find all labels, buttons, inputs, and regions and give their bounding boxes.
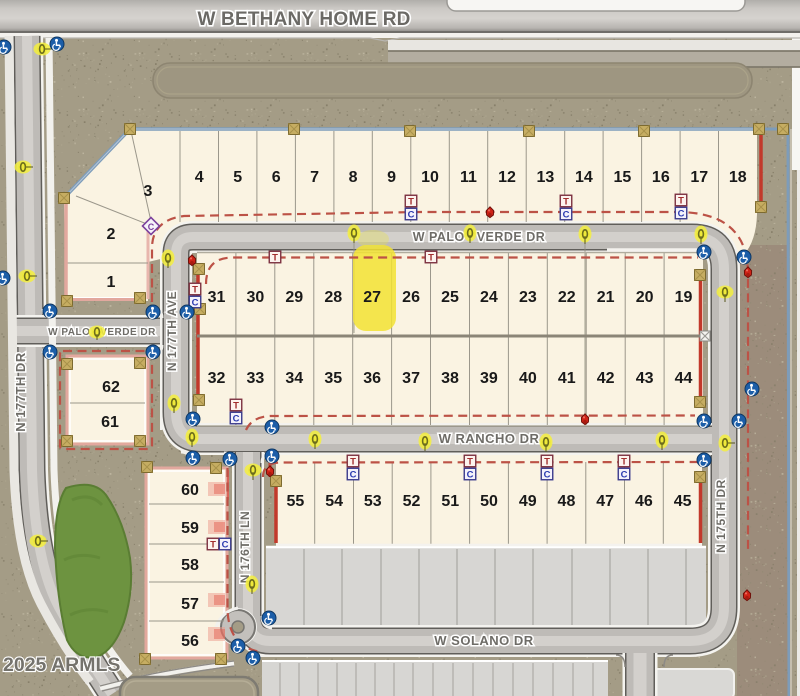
- svg-text:32: 32: [208, 370, 226, 387]
- svg-text:33: 33: [246, 370, 264, 387]
- svg-text:C: C: [467, 470, 474, 481]
- svg-text:T: T: [272, 253, 278, 264]
- svg-text:60: 60: [181, 482, 199, 499]
- svg-text:58: 58: [181, 557, 199, 574]
- svg-text:15: 15: [613, 169, 631, 186]
- svg-text:11: 11: [460, 169, 477, 186]
- svg-text:13: 13: [537, 169, 555, 186]
- svg-text:5: 5: [233, 169, 242, 186]
- svg-text:C: C: [222, 540, 229, 551]
- svg-text:N 177TH AVE: N 177TH AVE: [165, 291, 179, 371]
- svg-text:54: 54: [325, 493, 343, 510]
- svg-text:22: 22: [558, 289, 576, 306]
- svg-text:4: 4: [195, 169, 204, 186]
- svg-text:T: T: [210, 540, 216, 551]
- svg-text:28: 28: [324, 289, 342, 306]
- svg-text:T: T: [678, 196, 684, 207]
- svg-text:39: 39: [480, 370, 498, 387]
- svg-text:59: 59: [181, 520, 199, 537]
- svg-text:T: T: [467, 457, 473, 468]
- svg-text:48: 48: [558, 493, 576, 510]
- svg-text:W RANCHO DR: W RANCHO DR: [439, 431, 540, 446]
- svg-text:47: 47: [596, 493, 614, 510]
- svg-text:17: 17: [690, 169, 708, 186]
- svg-text:C: C: [678, 209, 685, 220]
- svg-text:8: 8: [349, 169, 358, 186]
- svg-text:37: 37: [402, 370, 420, 387]
- svg-text:24: 24: [480, 289, 498, 306]
- svg-text:9: 9: [387, 169, 396, 186]
- svg-text:T: T: [192, 285, 198, 296]
- svg-text:7: 7: [310, 169, 319, 186]
- svg-text:55: 55: [286, 493, 304, 510]
- svg-text:31: 31: [208, 289, 226, 306]
- svg-text:42: 42: [597, 370, 615, 387]
- svg-text:18: 18: [729, 169, 747, 186]
- svg-text:14: 14: [575, 169, 593, 186]
- svg-text:10: 10: [421, 169, 439, 186]
- svg-text:21: 21: [597, 289, 615, 306]
- svg-text:C: C: [148, 222, 155, 232]
- svg-text:6: 6: [272, 169, 281, 186]
- svg-text:N 177TH DR: N 177TH DR: [13, 352, 28, 432]
- svg-text:44: 44: [675, 370, 693, 387]
- svg-text:C: C: [408, 210, 415, 221]
- svg-text:57: 57: [181, 596, 199, 613]
- svg-text:40: 40: [519, 370, 537, 387]
- svg-text:W BETHANY HOME RD: W BETHANY HOME RD: [197, 9, 410, 30]
- svg-text:23: 23: [519, 289, 537, 306]
- svg-text:50: 50: [480, 493, 498, 510]
- svg-text:53: 53: [364, 493, 382, 510]
- svg-text:62: 62: [102, 379, 120, 396]
- svg-text:N 175TH DR: N 175TH DR: [714, 479, 728, 553]
- svg-text:W SOLANO DR: W SOLANO DR: [434, 633, 533, 648]
- svg-text:T: T: [544, 457, 550, 468]
- svg-text:W PALO VERDE DR: W PALO VERDE DR: [413, 230, 546, 244]
- svg-text:27: 27: [363, 289, 381, 306]
- svg-text:1: 1: [107, 274, 116, 291]
- svg-text:16: 16: [652, 169, 670, 186]
- svg-text:T: T: [428, 253, 434, 264]
- svg-text:2: 2: [107, 226, 116, 243]
- svg-text:12: 12: [498, 169, 516, 186]
- svg-text:45: 45: [674, 493, 692, 510]
- svg-text:30: 30: [246, 289, 264, 306]
- svg-text:43: 43: [636, 370, 654, 387]
- svg-text:C: C: [563, 210, 570, 221]
- svg-text:N 176TH LN: N 176TH LN: [238, 511, 252, 583]
- svg-text:C: C: [350, 470, 357, 481]
- svg-text:46: 46: [635, 493, 653, 510]
- svg-text:C: C: [233, 414, 240, 425]
- svg-text:36: 36: [363, 370, 381, 387]
- svg-text:C: C: [192, 298, 199, 309]
- svg-text:26: 26: [402, 289, 420, 306]
- svg-text:20: 20: [636, 289, 654, 306]
- svg-text:C: C: [621, 470, 628, 481]
- svg-text:51: 51: [441, 493, 459, 510]
- svg-text:C: C: [544, 470, 551, 481]
- svg-text:T: T: [621, 457, 627, 468]
- svg-text:61: 61: [101, 414, 119, 431]
- svg-text:T: T: [563, 197, 569, 208]
- svg-text:35: 35: [324, 370, 342, 387]
- svg-text:41: 41: [558, 370, 576, 387]
- svg-text:2025 ARMLS: 2025 ARMLS: [3, 654, 120, 676]
- svg-text:29: 29: [285, 289, 303, 306]
- svg-text:3: 3: [144, 183, 153, 200]
- svg-text:38: 38: [441, 370, 459, 387]
- svg-text:25: 25: [441, 289, 459, 306]
- svg-text:52: 52: [403, 493, 421, 510]
- svg-text:19: 19: [675, 289, 693, 306]
- svg-text:49: 49: [519, 493, 537, 510]
- svg-text:34: 34: [285, 370, 303, 387]
- svg-text:T: T: [408, 197, 414, 208]
- svg-text:T: T: [233, 401, 239, 412]
- svg-text:56: 56: [181, 633, 199, 650]
- svg-text:T: T: [350, 457, 356, 468]
